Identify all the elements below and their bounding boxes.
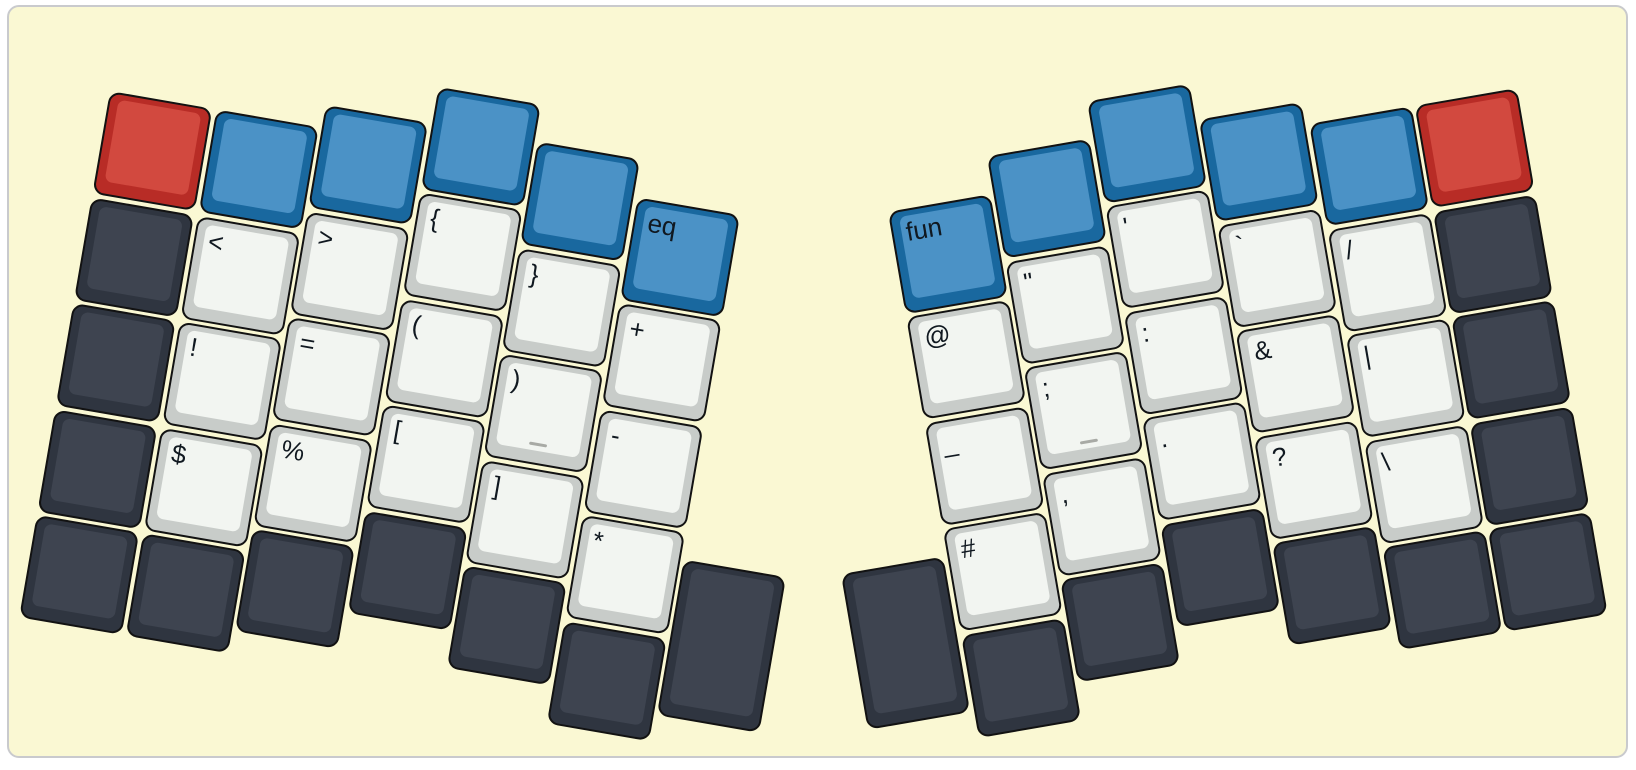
key-legend: " (1021, 266, 1035, 297)
keycap-top: > (302, 220, 399, 316)
key-comma[interactable]: , (1042, 457, 1162, 577)
key-legend: - (609, 419, 623, 450)
key-blank-left-2[interactable] (56, 303, 176, 423)
key-less-than[interactable]: < (180, 215, 300, 335)
key-legend: | (1361, 340, 1373, 371)
key-blank-right-15[interactable] (1086, 84, 1206, 204)
keycap-top (1444, 203, 1541, 299)
key-blank-left-19[interactable] (347, 510, 467, 630)
key-blank-left-14[interactable] (235, 529, 355, 649)
key-ampersand[interactable]: & (1235, 314, 1355, 434)
keycap-top (1499, 520, 1596, 616)
key-blank-right-0[interactable] (1415, 88, 1535, 208)
keycap-top: / (1338, 221, 1435, 317)
keycap-top: $ (156, 436, 253, 532)
key-blank-left-15[interactable] (420, 87, 540, 207)
key-underscore[interactable]: _ (924, 406, 1044, 526)
key-asterisk[interactable]: * (565, 515, 685, 635)
key-legend: { (428, 203, 442, 234)
key-legend: } (528, 258, 542, 289)
keyboard-canvas: <!$>=%{([})]eq+-* /|\`&?':.";,fun@_# (7, 5, 1628, 758)
key-legend: # (958, 532, 977, 564)
key-blank-right-29[interactable] (961, 618, 1081, 738)
keycap-top: } (514, 256, 611, 352)
keycap-top: % (265, 432, 362, 528)
keycap-top (1393, 539, 1490, 635)
key-legend: [ (391, 415, 403, 446)
keycap-top (68, 311, 165, 407)
key-blank-left-30[interactable] (657, 560, 786, 733)
keycap-top: < (192, 224, 289, 320)
keycap-top: # (953, 520, 1050, 616)
key-legend: . (1158, 423, 1170, 454)
key-blank-left-9[interactable] (125, 533, 245, 653)
keycap-top (1426, 97, 1523, 193)
key-minus[interactable]: - (583, 409, 703, 529)
keycap-top (459, 574, 556, 670)
keycap-top (137, 542, 234, 638)
key-blank-right-10[interactable] (1199, 102, 1319, 222)
key-legend: ; (1040, 373, 1052, 404)
key-blank-right-1[interactable] (1433, 194, 1553, 314)
key-hash[interactable]: # (942, 512, 1062, 632)
keycap-top: ] (477, 468, 574, 564)
key-legend: ! (188, 332, 200, 363)
key-blank-right-5[interactable] (1309, 106, 1429, 226)
keycap-top (31, 523, 128, 619)
keycap-top (1210, 111, 1307, 207)
key-paren-open[interactable]: ( (384, 298, 504, 418)
keycap-top: \ (1375, 433, 1472, 529)
keycap-top: { (414, 201, 511, 297)
key-blank-right-9[interactable] (1382, 530, 1502, 650)
keycap-top: eq (632, 205, 729, 301)
key-legend: ) (509, 364, 523, 395)
key-legend: ( (410, 309, 424, 340)
key-blank-left-0[interactable] (92, 91, 212, 211)
key-double-quote[interactable]: " (1005, 245, 1125, 365)
key-legend: < (206, 226, 226, 258)
key-backtick[interactable]: ` (1217, 208, 1337, 328)
keycap-top (1283, 535, 1380, 631)
keycap-top (998, 148, 1095, 244)
key-blank-left-20[interactable] (520, 142, 640, 262)
keycap-top (532, 151, 629, 247)
keycap-top (86, 206, 183, 302)
key-percent[interactable]: % (253, 423, 373, 543)
key-apostrophe[interactable]: ' (1105, 189, 1225, 309)
keycap-top: @ (917, 308, 1014, 404)
key-legend: = (297, 328, 317, 360)
keycap-top: " (1016, 253, 1113, 349)
keycap-top: - (595, 417, 692, 513)
key-equals[interactable]: = (271, 317, 391, 437)
keycap-top: fun (898, 202, 995, 298)
key-blank-right-14[interactable] (1272, 526, 1392, 646)
key-legend: * (591, 525, 606, 556)
key-legend: + (627, 313, 647, 345)
key-legend: \ (1380, 446, 1392, 477)
keycap-top (1098, 92, 1195, 188)
key-blank-right-20[interactable] (987, 139, 1107, 259)
keycap-top (210, 118, 307, 214)
key-backslash[interactable]: \ (1363, 424, 1483, 544)
keycap-top: & (1246, 323, 1343, 419)
keycap-top: [ (378, 413, 475, 509)
keycap-top: ! (174, 330, 271, 426)
keycap-top: ' (1116, 198, 1213, 294)
key-legend: / (1343, 234, 1355, 265)
key-blank-left-3[interactable] (37, 409, 157, 529)
keycap-top: = (284, 326, 381, 422)
key-colon[interactable]: : (1123, 295, 1243, 415)
keycap-top (559, 629, 656, 725)
keycap-top (1480, 414, 1577, 510)
keycap-top: , (1053, 465, 1150, 561)
key-blank-left-5[interactable] (198, 109, 318, 229)
key-bracket-close[interactable]: ] (465, 460, 585, 580)
homing-bar (1080, 439, 1098, 445)
keycap-top (105, 100, 202, 196)
key-question[interactable]: ? (1254, 420, 1374, 540)
key-legend: ] (491, 470, 503, 501)
keycap-top: ? (1265, 429, 1362, 525)
keycap-top: + (613, 311, 710, 407)
key-legend: eq (646, 207, 680, 241)
key-legend: & (1252, 334, 1274, 367)
keycap-top (433, 95, 530, 191)
keycap-top (50, 417, 147, 513)
keycap-top: . (1152, 410, 1249, 506)
keycap-top: ` (1228, 217, 1325, 313)
keycap-top (669, 568, 775, 717)
key-fun-layer[interactable]: fun (887, 194, 1007, 314)
key-blank-right-3[interactable] (1469, 406, 1589, 526)
keycap-top: ( (396, 307, 493, 403)
key-legend: , (1058, 479, 1070, 510)
keycap-top (320, 114, 417, 210)
key-blank-left-10[interactable] (308, 105, 428, 225)
key-slash[interactable]: / (1327, 212, 1447, 332)
key-brace-open[interactable]: { (402, 192, 522, 312)
key-bracket-open[interactable]: [ (365, 404, 485, 524)
key-blank-left-4[interactable] (19, 515, 139, 635)
key-period[interactable]: . (1141, 401, 1261, 521)
keycap-top: : (1134, 304, 1231, 400)
keycap-top: ; (1035, 359, 1132, 455)
key-paren-close[interactable]: ) (483, 354, 603, 474)
key-greater-than[interactable]: > (290, 211, 410, 331)
key-blank-left-24[interactable] (447, 566, 567, 686)
keycap-top (1071, 571, 1168, 667)
key-legend: @ (922, 318, 953, 352)
keycap-top (1462, 308, 1559, 404)
keycap-top: _ (935, 414, 1032, 510)
homing-bar (529, 442, 547, 448)
key-semicolon[interactable]: ; (1024, 351, 1144, 471)
key-pipe[interactable]: | (1345, 318, 1465, 438)
key-legend: > (316, 222, 336, 254)
key-at[interactable]: @ (906, 300, 1026, 420)
keycap-top: | (1356, 327, 1453, 423)
keycap-top (359, 519, 456, 615)
key-blank-right-2[interactable] (1451, 300, 1571, 420)
keycap-top: * (577, 523, 674, 619)
key-brace-close[interactable]: } (502, 248, 622, 368)
key-blank-right-19[interactable] (1160, 507, 1280, 627)
key-blank-left-1[interactable] (74, 197, 194, 317)
keycap-top (1320, 115, 1417, 211)
key-blank-right-24[interactable] (1060, 563, 1180, 683)
key-blank-right-30[interactable] (841, 557, 970, 730)
key-dollar[interactable]: $ (143, 427, 263, 547)
key-blank-left-29[interactable] (546, 621, 666, 741)
key-legend: $ (169, 438, 188, 470)
key-legend: ' (1121, 212, 1131, 242)
keycap-top (972, 626, 1069, 722)
key-legend: _ (940, 426, 959, 458)
key-legend: fun (903, 211, 944, 247)
key-plus[interactable]: + (601, 303, 721, 423)
key-legend: % (279, 434, 307, 467)
key-legend: : (1139, 317, 1151, 348)
key-exclamation[interactable]: ! (162, 321, 282, 441)
key-eq-layer[interactable]: eq (619, 197, 739, 317)
key-blank-right-4[interactable] (1488, 512, 1608, 632)
key-legend: ? (1270, 441, 1289, 473)
keycap-top (1171, 516, 1268, 612)
keycap-top: ) (496, 362, 593, 458)
keycap-top (852, 565, 958, 714)
key-legend: ` (1233, 230, 1247, 261)
keycap-top (247, 538, 344, 634)
